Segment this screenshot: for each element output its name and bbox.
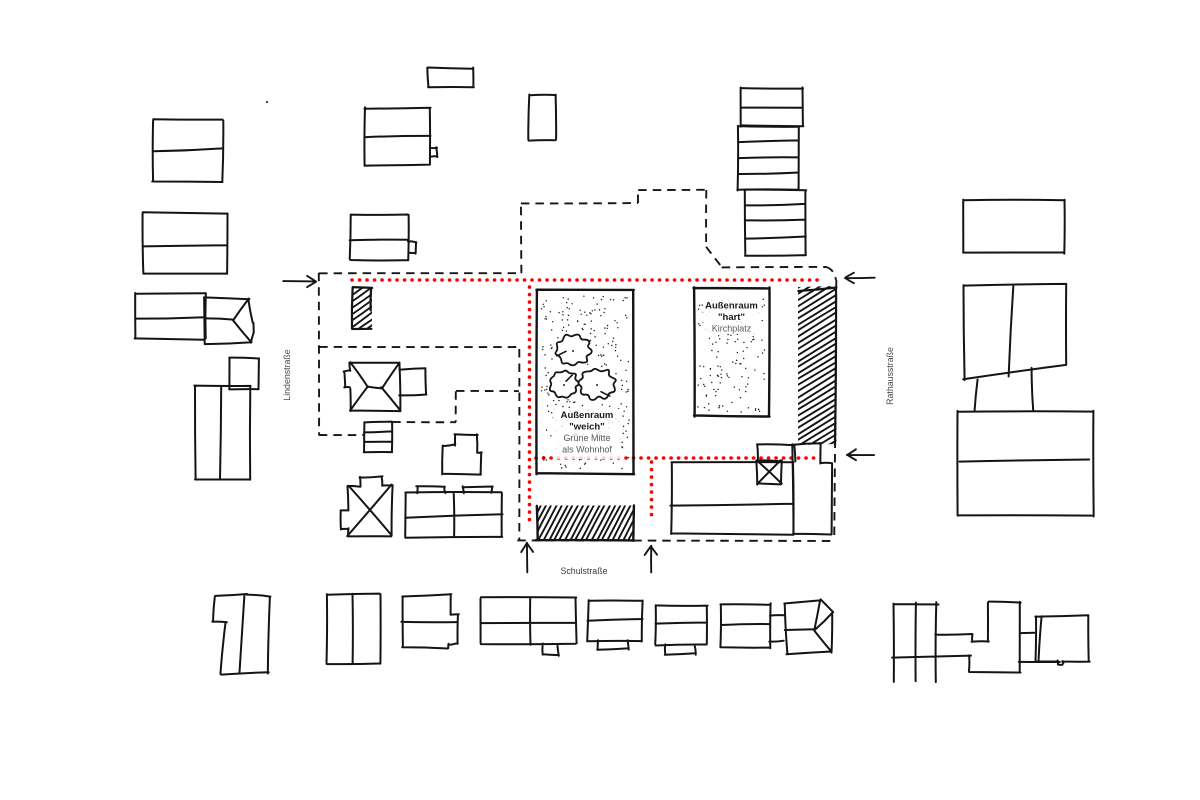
svg-text:Kirchplatz: Kirchplatz (712, 324, 752, 334)
svg-text:"weich": "weich" (569, 422, 604, 433)
svg-text:Lindenstraße: Lindenstraße (282, 349, 292, 400)
svg-text:als Wohnhof: als Wohnhof (562, 445, 612, 455)
svg-text:Schulstraße: Schulstraße (561, 566, 608, 576)
svg-text:Rathausstraße: Rathausstraße (885, 347, 895, 405)
svg-text:Grüne Mitte: Grüne Mitte (563, 433, 610, 443)
svg-text:"hart": "hart" (718, 312, 745, 323)
svg-text:Außenraum: Außenraum (561, 410, 614, 421)
svg-text:Außenraum: Außenraum (705, 301, 758, 312)
